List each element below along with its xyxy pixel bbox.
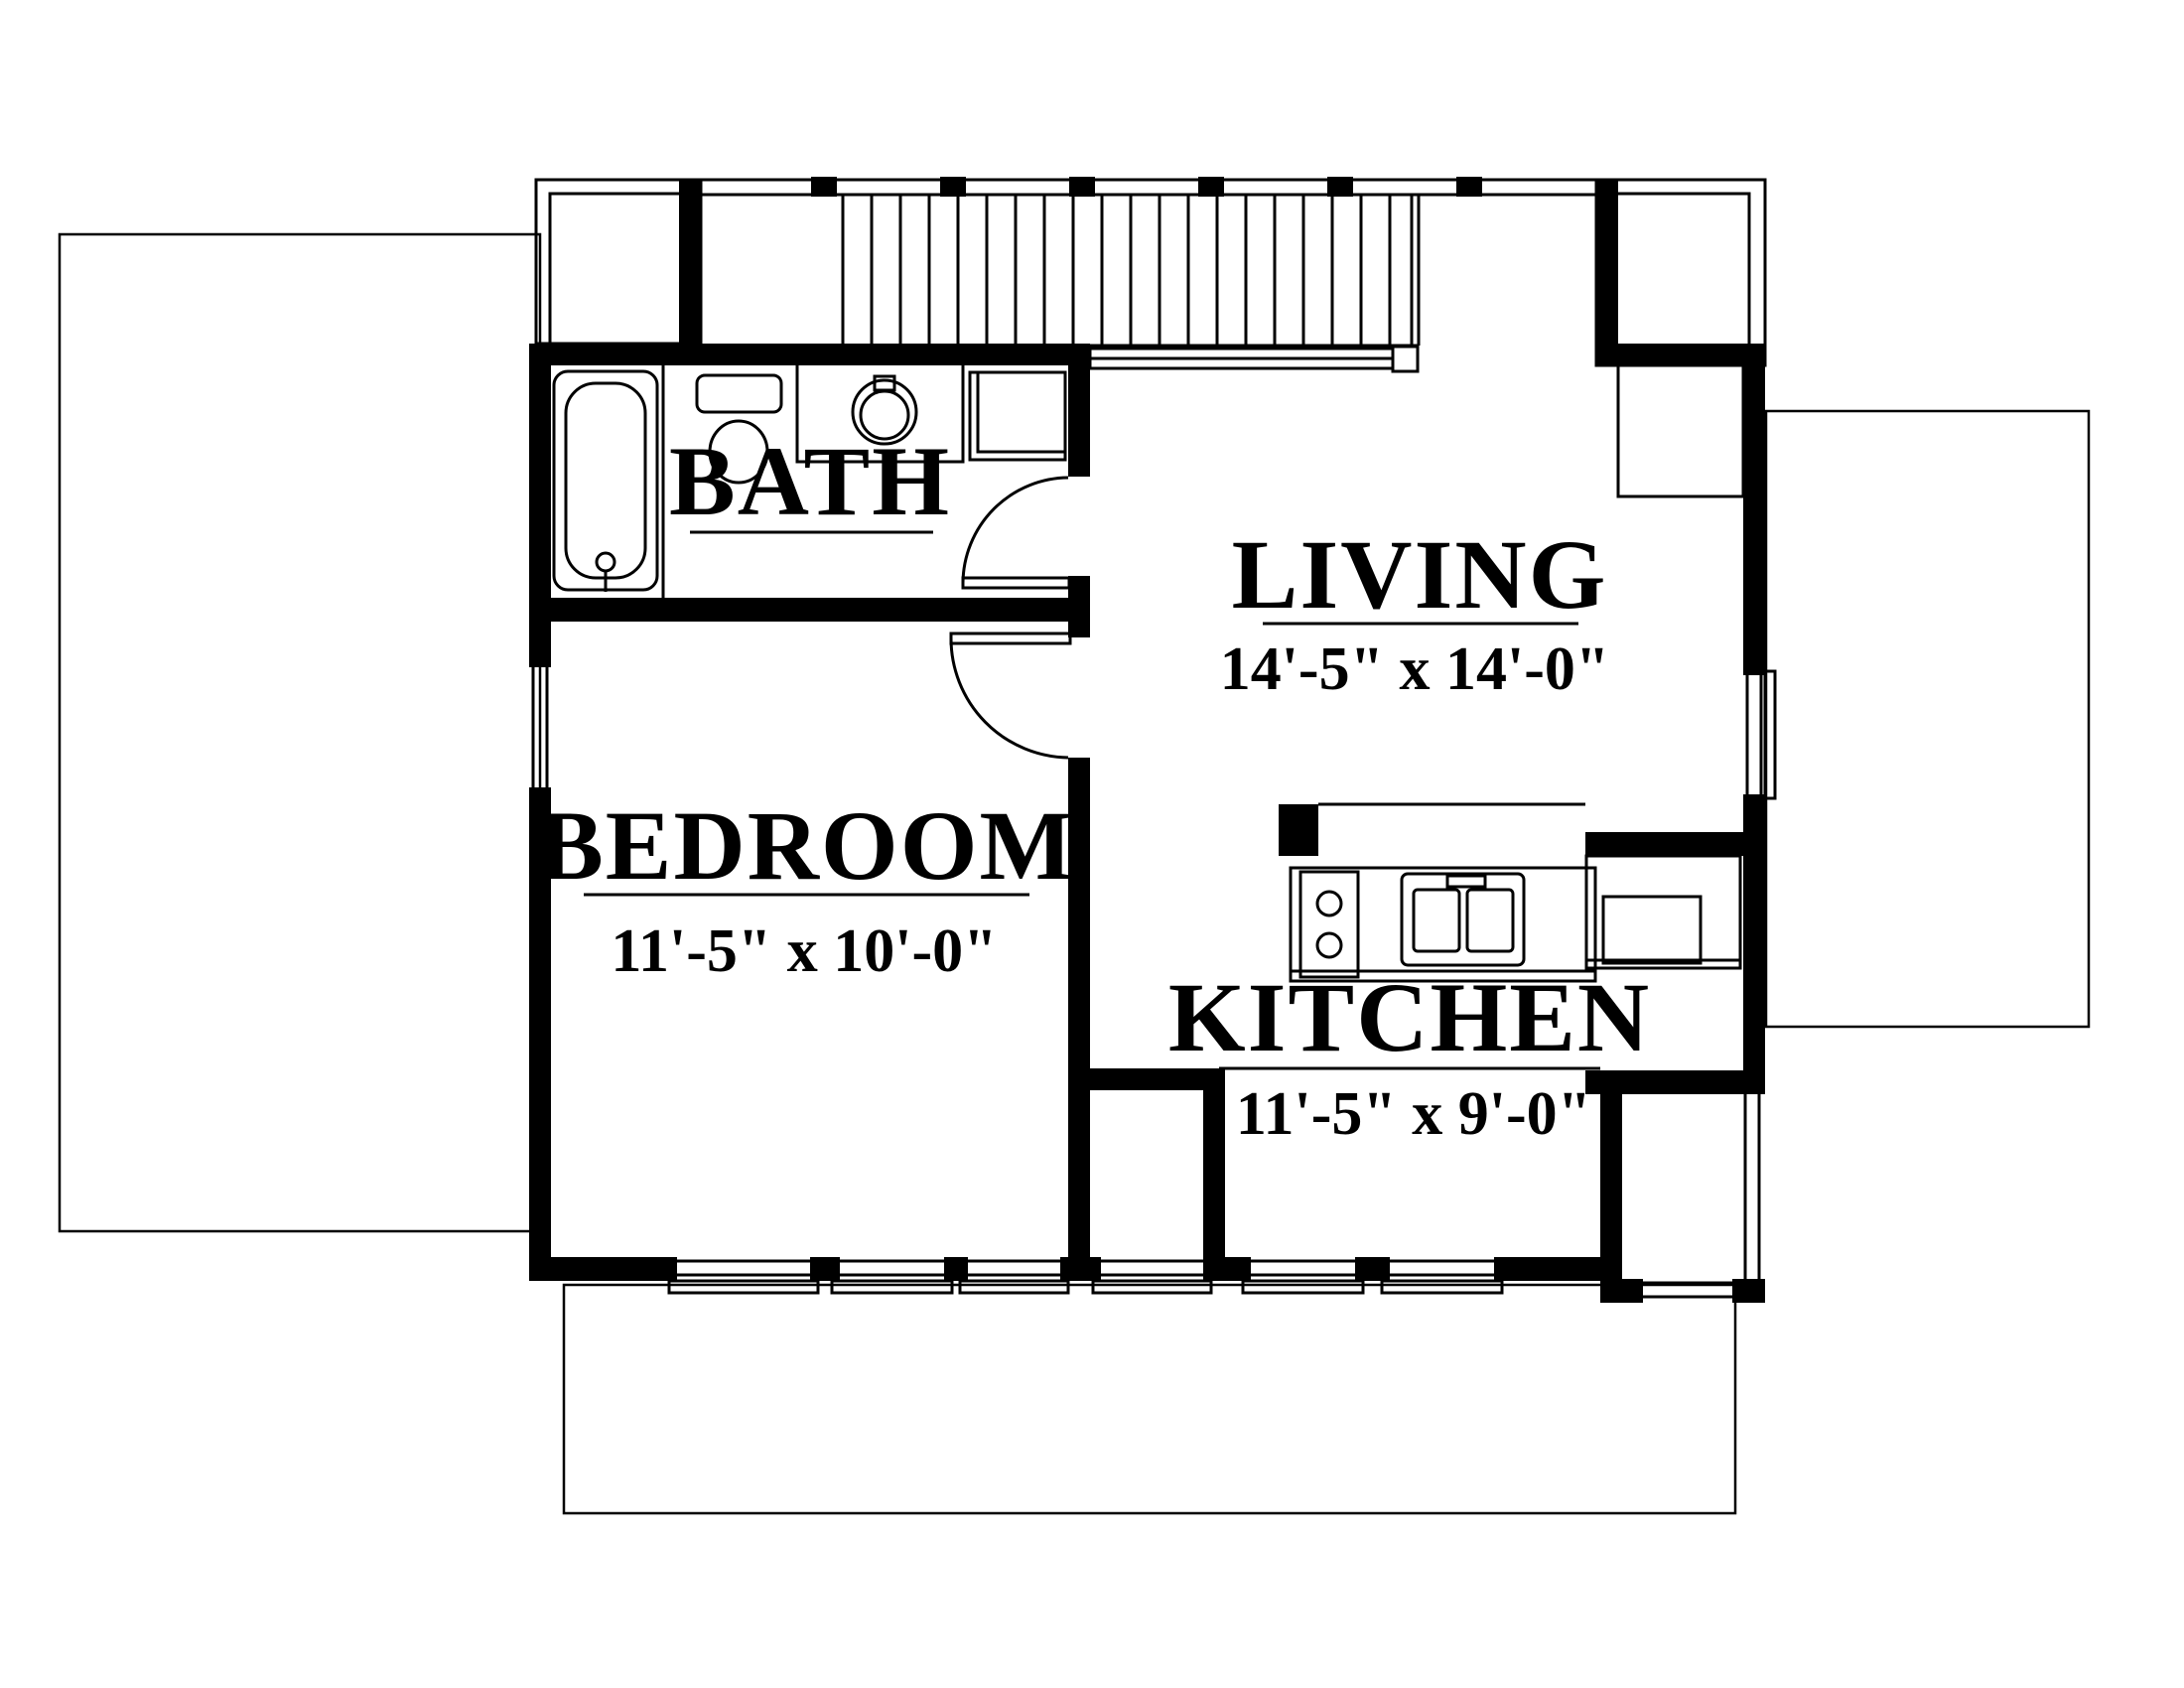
- bath-door-leaf: [963, 578, 1069, 588]
- vanity-sink: [697, 375, 781, 412]
- floor-plan-page: BATH LIVING 14'-5" x 14'-0" BEDROOM 11'-…: [0, 0, 2184, 1688]
- left-roof-outline: [60, 234, 540, 1231]
- kitchen-label: KITCHEN: [1168, 962, 1651, 1072]
- bath-door-swing: [963, 478, 1068, 583]
- sink-faucet: [1447, 876, 1485, 887]
- south-wall-segment: [1060, 1257, 1101, 1281]
- south-window: [669, 1261, 818, 1293]
- window-jamb: [1069, 177, 1095, 197]
- sink-basin-left: [1414, 890, 1459, 951]
- window-sill: [669, 1281, 818, 1293]
- north-wall-windows: [701, 177, 1596, 197]
- south-wall-segment: [1203, 1257, 1251, 1281]
- kitchen-dimensions: 11'-5" x 9'-0": [1236, 1080, 1591, 1148]
- east-window-sill: [1765, 671, 1775, 798]
- bedroom-door-swing: [951, 638, 1068, 758]
- kitchen-pier: [1279, 804, 1318, 856]
- right-dormer-wall-bottom: [1596, 344, 1765, 365]
- right-dormer-wall-left: [1596, 180, 1618, 365]
- sink-basin-right: [1467, 890, 1513, 951]
- right-roof-outline: [1766, 411, 2089, 1027]
- bedroom-dimensions: 11'-5" x 10'-0": [611, 917, 997, 985]
- burner-icon: [1317, 933, 1341, 957]
- bathtub-inner: [566, 383, 645, 578]
- kitchen-north-wall: [1585, 832, 1744, 856]
- refrigerator: [1603, 897, 1701, 963]
- east-counter: [1586, 856, 1740, 968]
- left-dormer: [536, 180, 701, 344]
- closet-east-wall: [1203, 1090, 1225, 1281]
- south-wall-segment: [944, 1257, 968, 1281]
- bath-label: BATH: [669, 426, 951, 536]
- east-wall-upper: [1743, 365, 1765, 675]
- floor-plan-drawing: BATH LIVING 14'-5" x 14'-0" BEDROOM 11'-…: [0, 0, 2184, 1688]
- room-labels: BATH LIVING 14'-5" x 14'-0" BEDROOM 11'-…: [537, 426, 1651, 1148]
- south-wall-segment: [529, 1257, 677, 1281]
- south-window: [960, 1261, 1068, 1293]
- newel-post: [1393, 347, 1418, 371]
- left-dormer-wall: [679, 180, 701, 344]
- bath-east-wall: [1068, 365, 1090, 477]
- left-dormer-inner-line: [550, 194, 679, 344]
- bedroom-door-leaf: [951, 633, 1070, 643]
- east-wall-lower: [1743, 794, 1765, 1075]
- window-sill: [1093, 1281, 1211, 1293]
- bay-south-wall: [1622, 1279, 1643, 1303]
- linen-cabinet: [970, 372, 1065, 460]
- tub-faucet-icon: [597, 553, 614, 571]
- window-jamb: [1327, 177, 1353, 197]
- bath-north-wall: [529, 344, 1090, 365]
- window-sill: [1243, 1281, 1363, 1293]
- south-wall-segment: [1355, 1257, 1390, 1281]
- bay-south-wall: [1732, 1279, 1765, 1303]
- bay-west-wall: [1600, 1094, 1622, 1303]
- living-ne-alcove-outline: [1618, 365, 1743, 496]
- living-dimensions: 14'-5" x 14'-0": [1220, 635, 1610, 703]
- left-dormer-outline: [536, 180, 701, 344]
- right-dormer-inner-line: [1618, 194, 1749, 344]
- bedroom-label: BEDROOM: [537, 790, 1075, 901]
- window-sill: [832, 1281, 952, 1293]
- kitchen-fixtures: [1291, 804, 1740, 981]
- south-window: [1243, 1261, 1363, 1293]
- south-window: [832, 1261, 952, 1293]
- kitchen-se-wall: [1585, 1070, 1765, 1094]
- window-sill: [1382, 1281, 1502, 1293]
- south-wall-segment: [1494, 1257, 1600, 1281]
- south-window: [1382, 1261, 1502, 1293]
- window-jamb: [811, 177, 837, 197]
- bottom-roof-outline: [564, 1285, 1735, 1513]
- south-window: [1093, 1261, 1211, 1293]
- linen-cabinet-inner: [978, 372, 1065, 452]
- right-dormer: [1596, 180, 1765, 496]
- window-jamb: [1456, 177, 1482, 197]
- living-label: LIVING: [1232, 519, 1608, 630]
- window-jamb: [940, 177, 966, 197]
- window-jamb: [1198, 177, 1224, 197]
- south-wall-segment: [810, 1257, 840, 1281]
- bath-bedroom-wall: [529, 598, 1090, 622]
- window-sill: [960, 1281, 1068, 1293]
- burner-icon: [1317, 892, 1341, 915]
- right-dormer-outline: [1596, 180, 1765, 365]
